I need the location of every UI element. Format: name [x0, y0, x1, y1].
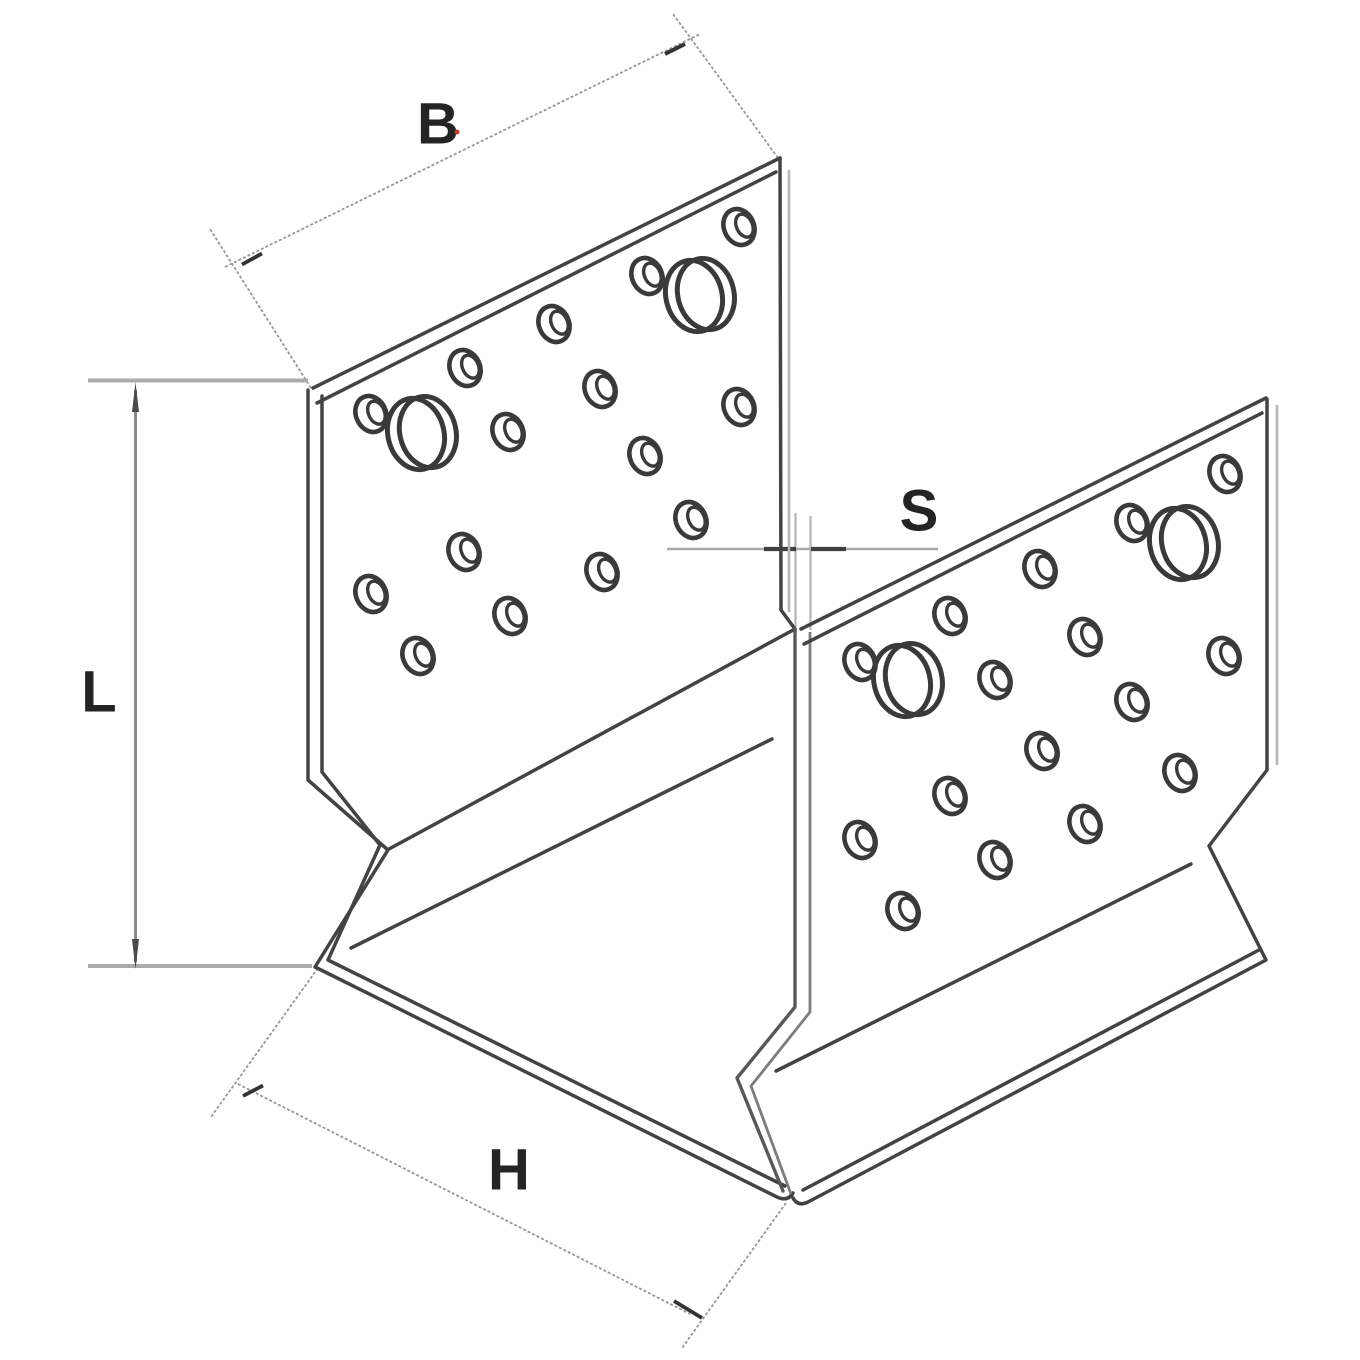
svg-text:L: L	[81, 660, 116, 725]
svg-text:B: B	[417, 92, 459, 157]
svg-text:S: S	[900, 479, 939, 544]
svg-text:H: H	[488, 1138, 530, 1203]
